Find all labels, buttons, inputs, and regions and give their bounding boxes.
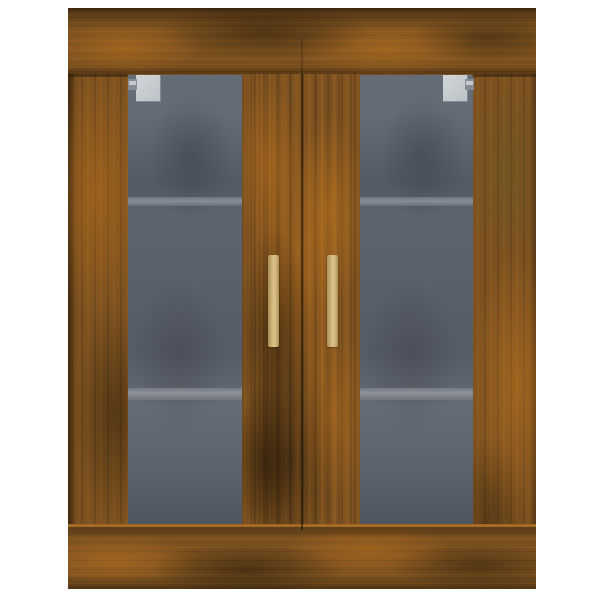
- left-door-handle: [268, 255, 279, 347]
- interior-shelf-upper: [128, 197, 242, 206]
- right-stile-joint-seam: [473, 74, 536, 77]
- right-door-hinge-tab: [465, 79, 474, 90]
- interior-shelf-lower: [360, 388, 473, 400]
- left-door-hinge-tab: [128, 79, 137, 90]
- cabinet-bottom-rail: [68, 524, 536, 589]
- product-photo-canvas: [0, 0, 600, 600]
- interior-shelf-upper: [360, 197, 473, 206]
- cabinet-body: [68, 8, 536, 589]
- interior-shelf-lower: [128, 388, 242, 400]
- left-stile-joint-seam: [68, 74, 128, 77]
- left-door-hinge-plate: [136, 75, 161, 102]
- door-gap-seam: [301, 38, 303, 530]
- right-door-handle: [327, 255, 338, 347]
- right-door-glass-pane: [360, 75, 473, 524]
- left-door-glass-pane: [128, 75, 242, 524]
